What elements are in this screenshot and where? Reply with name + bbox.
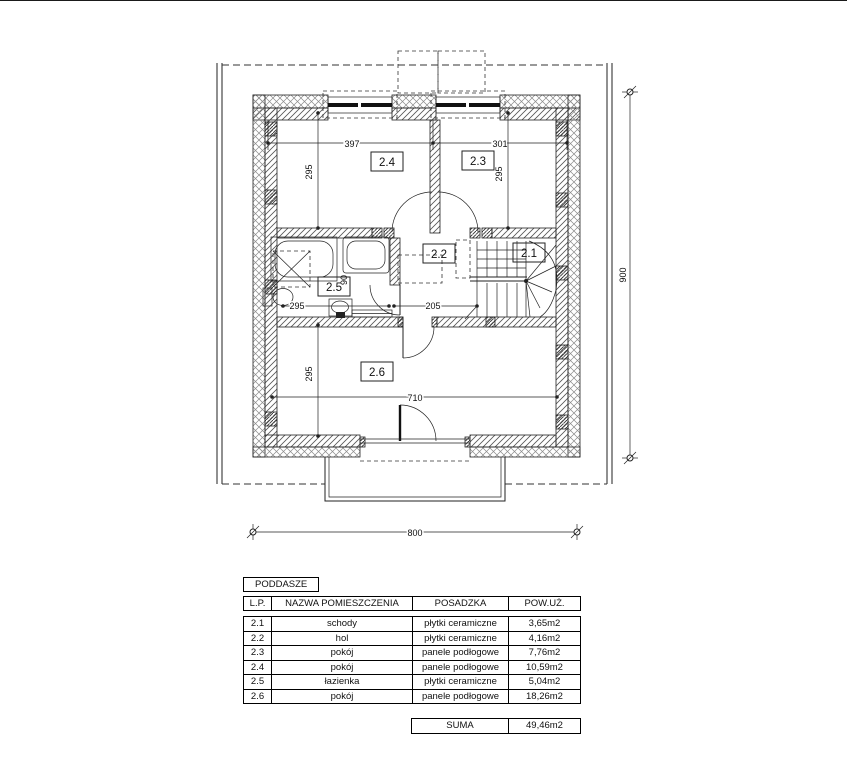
col-header-lp: L.P. (244, 597, 272, 610)
room-legend: PODDASZE L.P. NAZWA POMIESZCZENIA POSADZ… (243, 577, 581, 734)
dim-label-room23-depth: 295 (494, 166, 504, 181)
table-row: 2.6 pokój panele podłogowe 18,26m2 (244, 690, 580, 704)
dim-label-room26-depth: 295 (304, 366, 314, 381)
cell-name: schody (272, 617, 413, 631)
col-header-floor: POSADZKA (413, 597, 509, 610)
cell-name: hol (272, 632, 413, 646)
cell-floor: płytki ceramiczne (413, 617, 509, 631)
room-label-23: 2.3 (462, 151, 494, 170)
shower-dashed-area (273, 251, 310, 287)
dim-label-overall-width: 800 (407, 528, 422, 538)
dim-label-hall-width: 205 (425, 301, 440, 311)
dim-room23-depth: 295 (494, 111, 510, 230)
svg-text:2.1: 2.1 (521, 248, 537, 260)
dim-label-room24-depth: 295 (304, 164, 314, 179)
door-arc-room26 (403, 327, 434, 358)
cell-name: pokój (272, 690, 413, 704)
cell-floor: płytki ceramiczne (413, 632, 509, 646)
dim-room26-width: 710 (270, 393, 559, 403)
table-row: 2.3 pokój panele podłogowe 7,76m2 (244, 646, 580, 661)
cell-floor: panele podłogowe (413, 661, 509, 675)
shower-tray (343, 237, 389, 273)
table-row: 2.1 schody płytki ceramiczne 3,65m2 (244, 617, 580, 632)
door-arc-entrance (400, 405, 436, 441)
window-2 (431, 91, 505, 118)
cell-area: 3,65m2 (509, 617, 580, 631)
cell-area: 7,76m2 (509, 646, 580, 660)
dim-label-bath-width: 295 (289, 301, 304, 311)
dim-overall-width: 800 (247, 524, 583, 540)
table-row: 2.2 hol płytki ceramiczne 4,16m2 (244, 632, 580, 647)
balcony (325, 457, 505, 501)
cell-lp: 2.3 (244, 646, 272, 660)
table-row: 2.4 pokój panele podłogowe 10,59m2 (244, 661, 580, 676)
cell-lp: 2.1 (244, 617, 272, 631)
cell-area: 18,26m2 (509, 690, 580, 704)
cell-name: pokój (272, 661, 413, 675)
staircase (456, 240, 557, 319)
dim-room24-depth: 295 (304, 111, 320, 230)
stair-opening-dashed (456, 240, 470, 278)
washbasin (329, 299, 352, 318)
sum-label: SUMA (412, 719, 509, 733)
legend-body: 2.1 schody płytki ceramiczne 3,65m2 2.2 … (243, 616, 581, 704)
col-header-area: POW.UŻ. (509, 597, 580, 610)
cell-floor: panele podłogowe (413, 646, 509, 660)
svg-text:2.3: 2.3 (470, 156, 486, 168)
floor-plan: 397 301 295 295 295 205 90 (0, 0, 847, 565)
cell-lp: 2.6 (244, 690, 272, 704)
cell-name: pokój (272, 646, 413, 660)
door-arc-room24 (392, 192, 432, 232)
cell-floor: panele podłogowe (413, 690, 509, 704)
sum-value: 49,46m2 (509, 719, 580, 733)
legend-title: PODDASZE (243, 577, 319, 592)
cell-lp: 2.5 (244, 675, 272, 689)
door-arc-bath (370, 285, 400, 315)
cell-lp: 2.4 (244, 661, 272, 675)
col-header-name: NAZWA POMIESZCZENIA (272, 597, 413, 610)
cell-floor: płytki ceramiczne (413, 675, 509, 689)
table-row: 2.5 łazienka płytki ceramiczne 5,04m2 (244, 675, 580, 690)
svg-text:2.2: 2.2 (431, 249, 447, 261)
sum-row: SUMA 49,46m2 (411, 718, 581, 734)
room-label-26: 2.6 (361, 362, 393, 381)
window-1 (323, 91, 397, 118)
radiator (352, 310, 392, 317)
room-label-22: 2.2 (423, 244, 455, 263)
dim-overall-height: 900 (618, 86, 638, 464)
cell-area: 4,16m2 (509, 632, 580, 646)
dim-label-room24-width: 397 (344, 139, 359, 149)
cell-lp: 2.2 (244, 632, 272, 646)
dim-top-widths: 397 301 (266, 120, 569, 150)
dim-label-overall-height: 900 (618, 267, 628, 282)
cell-area: 5,04m2 (509, 675, 580, 689)
cell-name: łazienka (272, 675, 413, 689)
legend-header-row: L.P. NAZWA POMIESZCZENIA POSADZKA POW.UŻ… (243, 596, 581, 611)
door-arc-room23 (438, 192, 478, 232)
svg-text:2.5: 2.5 (326, 282, 342, 294)
svg-text:2.4: 2.4 (379, 157, 396, 169)
chimney-outline (398, 51, 485, 93)
svg-text:2.6: 2.6 (369, 367, 385, 379)
room-label-24: 2.4 (371, 152, 403, 171)
dim-hall-width: 205 (392, 301, 479, 311)
dim-label-room23-width: 301 (492, 139, 507, 149)
dim-bath-width: 295 (281, 301, 391, 311)
dim-label-room26-width: 710 (407, 393, 422, 403)
dim-room26-depth: 295 (304, 322, 320, 438)
page: { "drawing": { "rooms": { "r21": "2.1", … (0, 0, 847, 772)
cell-area: 10,59m2 (509, 661, 580, 675)
